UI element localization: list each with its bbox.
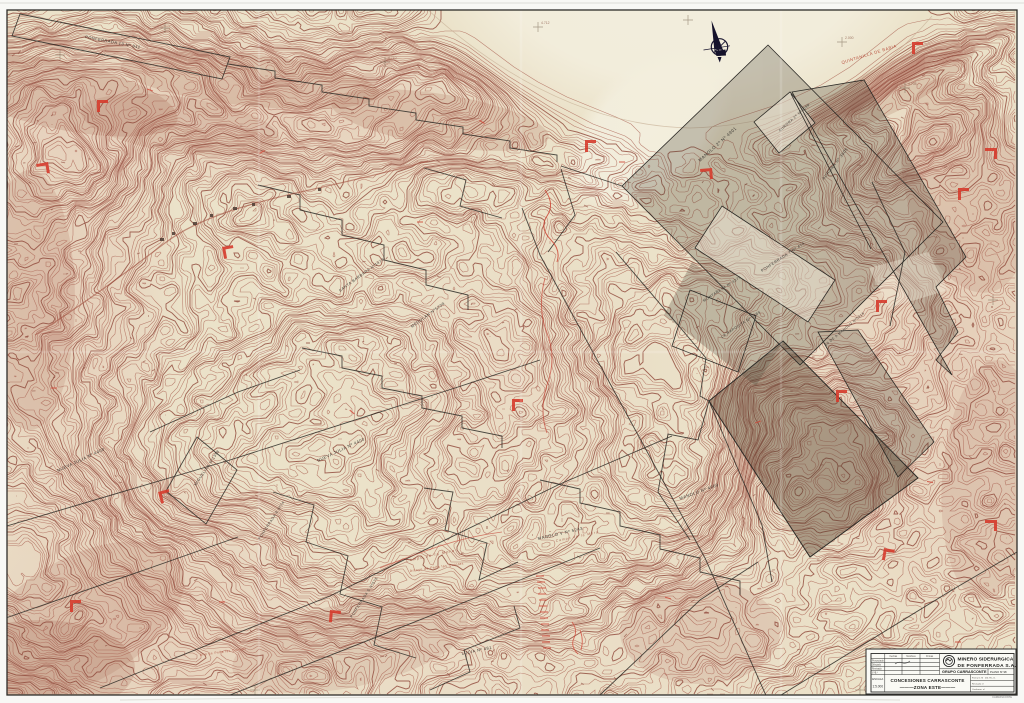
svg-text:CONCESIONES CARRASCONTE: CONCESIONES CARRASCONTE [890,678,964,683]
svg-text:MINERO SIDERURGICA: MINERO SIDERURGICA [958,657,1014,663]
svg-text:Fechas: Fechas [890,656,898,658]
svg-text:Dibujado: Dibujado [872,665,882,667]
svg-text:Revisado el: Revisado el [972,683,984,685]
svg-text:PLANO Nº 98: PLANO Nº 98 [990,670,1007,674]
svg-text:2.000: 2.000 [845,36,854,40]
svg-text:DE PONFERRADA S.A.: DE PONFERRADA S.A. [958,663,1017,669]
svg-text:GRUPO CARRASCONTE: GRUPO CARRASCONTE [942,670,987,674]
svg-text:CARRASCONTE: CARRASCONTE [992,695,1012,699]
svg-text:N: N [714,44,720,53]
svg-text:———ZONA ESTE———: ———ZONA ESTE——— [900,685,956,690]
svg-text:4.710: 4.710 [388,56,397,60]
svg-text:Conforme: el: Conforme: el [972,688,985,691]
svg-text:4.712: 4.712 [541,21,550,25]
svg-text:Nombres: Nombres [906,655,916,658]
svg-text:1:5.000: 1:5.000 [872,685,883,689]
svg-text:Firmas: Firmas [926,655,934,658]
svg-text:Fecha 6-73 Dib. R.L.S.: Fecha 6-73 Dib. R.L.S. [972,678,996,680]
svg-text:Proyectado: Proyectado [872,660,884,663]
svg-text:ESCALA: ESCALA [872,677,883,681]
svg-text:Revisado: Revisado [872,669,882,671]
svg-text:4.708: 4.708 [908,82,917,86]
